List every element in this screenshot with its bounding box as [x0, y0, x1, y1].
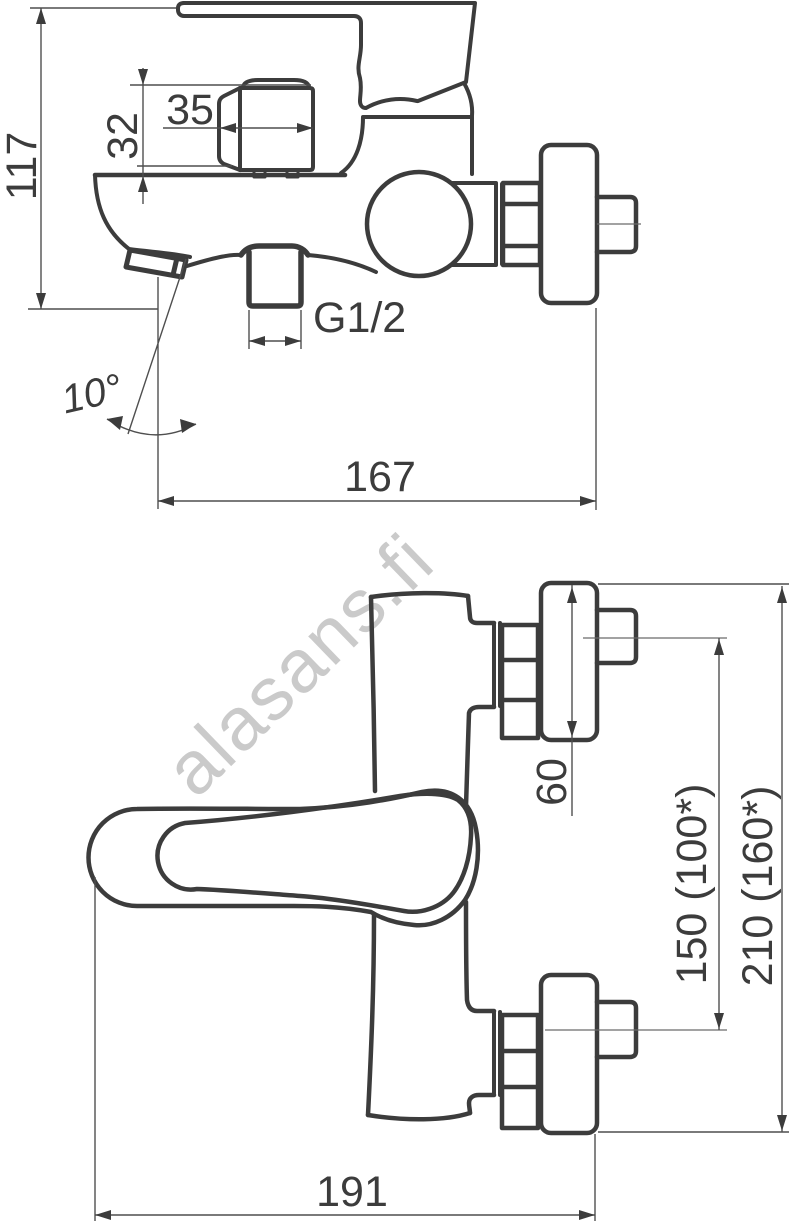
cartridge-circle	[367, 172, 471, 276]
technical-drawing-page: alasans.fi	[0, 0, 789, 1224]
hex-nut-side	[503, 183, 540, 265]
bottom-connection	[494, 975, 727, 1133]
knob-cap	[243, 80, 309, 87]
dim-label-35: 35	[166, 86, 214, 134]
dim-label-10deg: 10°	[57, 366, 126, 422]
faucet-body-side	[95, 117, 472, 272]
wall-stem-side	[597, 197, 641, 252]
outlet-nipple	[249, 252, 301, 306]
dim-label-191: 191	[316, 1168, 388, 1216]
wall-flange-bottom	[541, 975, 597, 1133]
wall-flange-top	[541, 583, 597, 740]
dim-label-117: 117	[0, 132, 46, 201]
dim-label-167: 167	[344, 453, 416, 501]
dim-label-g12: G1/2	[313, 294, 406, 342]
lever-front	[88, 791, 477, 926]
connection-housing-side	[451, 183, 502, 265]
dim-label-210: 210 (160*)	[734, 786, 782, 987]
dim-overall-height: 117	[0, 8, 176, 309]
wall-flange-side	[541, 145, 597, 303]
dim-label-150: 150 (100*)	[668, 784, 716, 985]
dim-label-60: 60	[528, 758, 576, 806]
side-view: 117 35 32 G1/2 10°	[0, 3, 641, 510]
front-view: 60 150 (100*) 210 (160*) 191	[88, 583, 789, 1221]
faucet-body-front	[368, 593, 494, 1119]
wall-stem-top	[597, 610, 636, 663]
dim-outlet-thread: G1/2	[249, 294, 406, 349]
dim-connection-cc: 150 (100*)	[668, 638, 724, 1030]
dim-label-32: 32	[99, 112, 147, 160]
dim-spout-angle: 10°	[57, 259, 196, 509]
top-connection	[494, 583, 727, 740]
faucet-dimension-drawing: alasans.fi	[0, 0, 789, 1224]
watermark-text: alasans.fi	[149, 517, 450, 811]
